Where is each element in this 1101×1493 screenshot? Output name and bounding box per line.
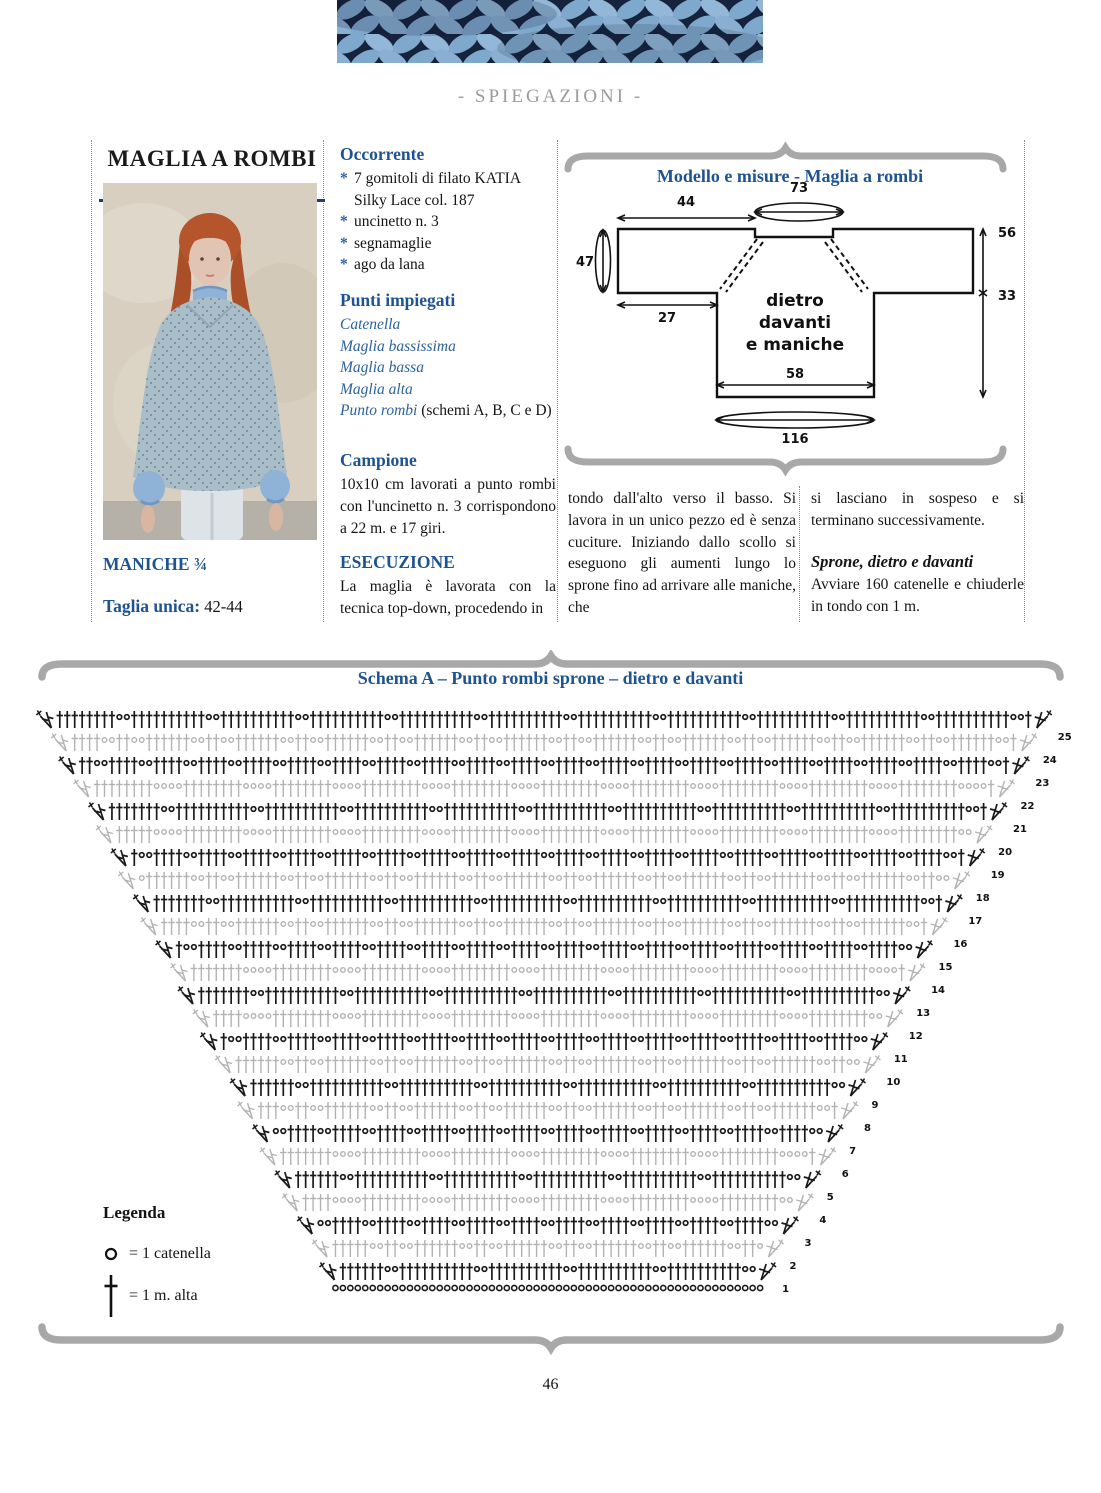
list-item: Maglia alta (340, 379, 556, 401)
chart-row-number: 15 (939, 962, 953, 973)
divider-left (91, 140, 92, 622)
measure-33: 33 (998, 289, 1016, 304)
chart-row-number: 12 (909, 1031, 923, 1042)
chain-symbol-icon (103, 1246, 119, 1262)
size-label: Taglia unica: (103, 596, 200, 616)
svg-text:dietro: dietro (766, 291, 824, 311)
divider-lower-cols (799, 486, 800, 622)
campione-text: 10x10 cm lavorati a punto rombi con l'un… (340, 474, 556, 539)
list-item: Maglia bassa (340, 357, 556, 379)
occorrente-list: *7 gomitoli di filato KATIA Silky Lace c… (340, 168, 556, 276)
legend-chain-label: = 1 catenella (129, 1245, 211, 1263)
chart-row-number: 17 (968, 916, 982, 927)
chart-row-number: 25 (1058, 732, 1072, 743)
garment-center-label: dietro davanti e maniche (746, 291, 844, 355)
esecuzione-heading: ESECUZIONE (340, 552, 455, 573)
esecuzione-text-col0: La maglia è lavorata con la tecnica top-… (340, 576, 556, 620)
legend-heading: Legenda (103, 1203, 211, 1223)
chart-row-number: 10 (886, 1077, 900, 1088)
size-value: 42-44 (200, 597, 243, 616)
chart-row-number: 16 (953, 939, 967, 950)
treble-symbol-icon (103, 1273, 119, 1319)
measure-47: 47 (576, 255, 594, 270)
panel-brace-bottom (568, 449, 1003, 470)
magazine-page: - SPIEGAZIONI - MAGLIA A ROMBI (0, 0, 1101, 1493)
measure-73: 73 (790, 181, 808, 196)
svg-text:e maniche: e maniche (746, 335, 844, 355)
section-label: - SPIEGAZIONI - (0, 86, 1101, 108)
esecuzione-text-col2: si lasciano in sospeso e si terminano su… (811, 488, 1024, 532)
page-number: 46 (0, 1376, 1101, 1394)
divider-col1 (323, 140, 324, 622)
schema-brace-top (42, 656, 1060, 677)
measure-116: 116 (781, 432, 808, 447)
chart-row-number: 22 (1021, 801, 1035, 812)
measure-27: 27 (658, 311, 676, 326)
model-measures-panel: Modello e misure - Maglia a rombi 44 73 (560, 140, 1030, 480)
svg-text:davanti: davanti (759, 313, 831, 333)
chart-row-number: 19 (991, 870, 1005, 881)
campione-heading: Campione (340, 450, 417, 471)
chart-row-number: 3 (804, 1238, 811, 1249)
chart-row-number: 14 (931, 985, 945, 996)
chart-row-number: 18 (976, 893, 990, 904)
list-item: Punto rombi (schemi A, B, C e D) (340, 400, 556, 422)
chart-row-number: 24 (1043, 755, 1057, 766)
size-line: Taglia unica: 42-44 (103, 596, 243, 617)
punti-heading: Punti impiegati (340, 290, 455, 311)
list-item: Maglia bassissima (340, 336, 556, 358)
legend-chain-row: = 1 catenella (103, 1245, 211, 1263)
article-title: MAGLIA A ROMBI (99, 146, 325, 172)
knit-banner-image (337, 0, 763, 63)
legend-treble-row: = 1 m. alta (103, 1273, 211, 1319)
measure-56: 56 (998, 226, 1016, 241)
list-item: *uncinetto n. 3 (340, 211, 556, 233)
chart-row-number: 1 (782, 1284, 789, 1295)
sprone-text: Avviare 160 catenelle e chiuderle in ton… (811, 574, 1024, 618)
chart-row-number: 9 (872, 1100, 879, 1111)
chart-legend: Legenda = 1 catenella = 1 m. alta (103, 1203, 211, 1319)
list-item: *ago da lana (340, 254, 556, 276)
measure-58: 58 (786, 367, 804, 382)
chart-row-number: 4 (819, 1215, 826, 1226)
punti-list: CatenellaMaglia bassissimaMaglia bassaMa… (340, 314, 556, 422)
list-item: *segnamaglie (340, 233, 556, 255)
measure-44: 44 (677, 195, 695, 210)
model-photo (103, 183, 317, 540)
sprone-heading: Sprone, dietro e davanti (811, 552, 973, 572)
divider-col2 (557, 140, 558, 622)
sleeves-note: MANICHE ¾ (103, 554, 207, 575)
occorrente-heading: Occorrente (340, 144, 424, 165)
chart-row-number: 11 (894, 1054, 908, 1065)
raglan-lines (720, 239, 868, 292)
schema-brace-bottom (42, 1327, 1060, 1348)
chart-row-number: 21 (1013, 824, 1027, 835)
chart-row-number: 5 (827, 1192, 834, 1203)
chart-row-number: 8 (864, 1123, 871, 1134)
list-item: *7 gomitoli di filato KATIA Silky Lace c… (340, 168, 556, 211)
chart-row-number: 13 (916, 1008, 930, 1019)
chart-row-number: 23 (1035, 778, 1049, 789)
chart-row-number: 20 (998, 847, 1012, 858)
chart-row-number: 2 (790, 1261, 797, 1272)
esecuzione-text-col1: tondo dall'alto verso il basso. Si lavor… (568, 488, 796, 619)
chart-row-number: 6 (842, 1169, 849, 1180)
legend-treble-label: = 1 m. alta (129, 1287, 198, 1305)
list-item: Catenella (340, 314, 556, 336)
chart-row-number: 7 (849, 1146, 856, 1157)
